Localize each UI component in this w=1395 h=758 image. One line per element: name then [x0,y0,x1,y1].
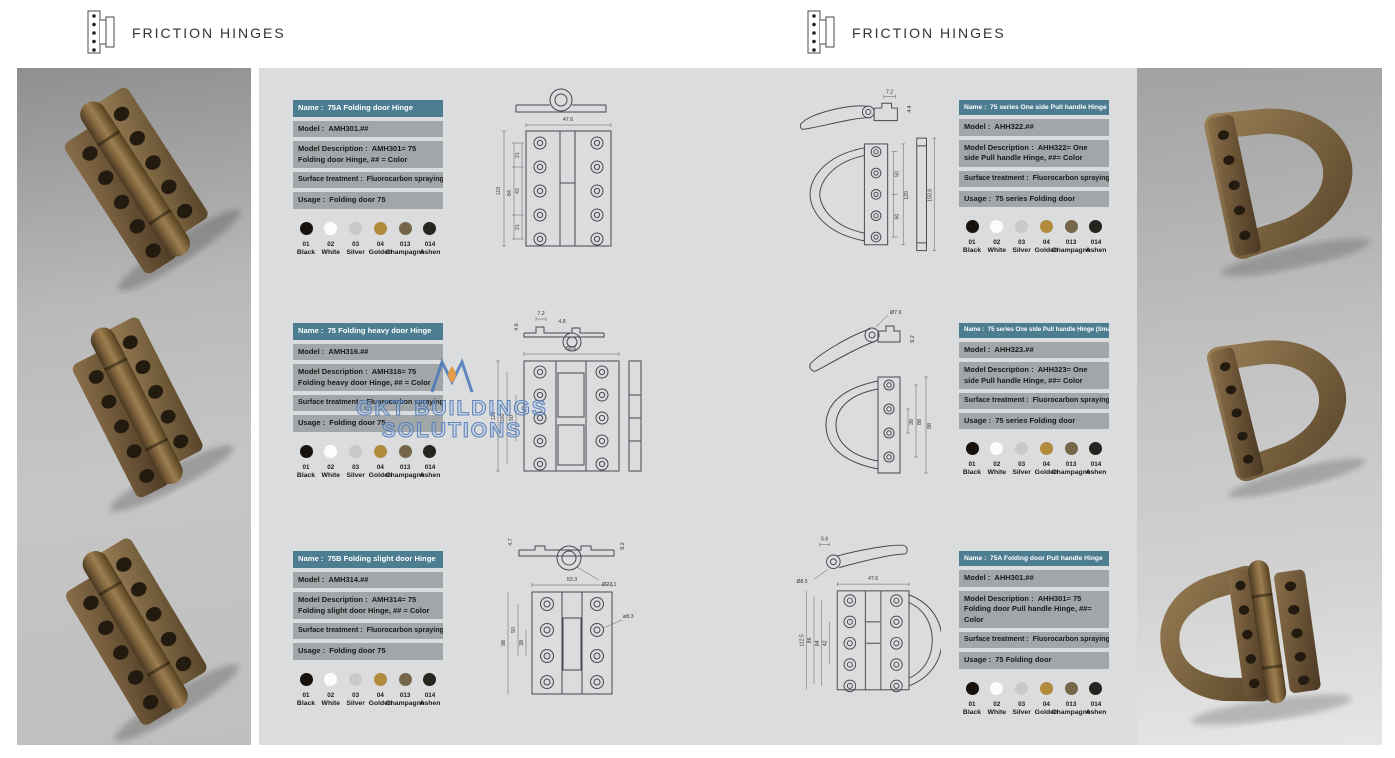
color-swatch-silver: 03Silver [344,222,368,256]
color-code: 013 [1066,239,1077,246]
color-swatch-row: 01Black02White03Silver04Golden013Champag… [293,673,443,707]
color-swatch-silver: 03Silver [344,673,368,707]
dim-label: ø8.3 [623,614,634,620]
color-name: Black [297,249,315,256]
color-code: 01 [968,461,975,468]
photo-folding-slight-door-hinge [17,519,251,745]
color-swatch-black: 01Black [960,682,984,716]
color-swatch-ashen: 014Ashen [418,222,442,256]
color-code: 014 [425,692,436,699]
color-dot [966,442,979,455]
color-dot [300,445,313,458]
color-swatch-white: 02White [319,445,343,479]
color-swatch-silver: 03Silver [344,445,368,479]
dim-label: 4.8 [558,319,565,325]
color-name: Black [297,472,315,479]
color-swatch-black: 01Black [960,442,984,476]
color-name: White [322,700,341,707]
color-swatch-ashen: 014Ashen [1084,220,1108,254]
color-name: Black [963,247,981,254]
color-swatch-black: 01Black [960,220,984,254]
color-code: 04 [1043,239,1050,246]
spec-usage-row: Usage : Folding door 75 [293,643,443,660]
dim-label: 120 [491,412,497,421]
color-code: 04 [377,692,384,699]
drawing-ahh301: 5.6 Ø8.5 47.6 112.5 86 84 42 [781,530,941,708]
catalog-page: FRICTION HINGES FRICTION HINGES [0,0,1395,758]
color-dot [423,222,436,235]
dim-label: 50 [509,415,515,421]
color-code: 02 [327,241,334,248]
dim-label: 84 [815,640,821,646]
dim-label: 4.6 [514,323,520,330]
spec-name-row: Name : 75A Folding door Hinge [293,100,443,117]
spec-description-row: Model Description : AHH322= One side Pul… [959,140,1109,167]
dim-label: 38 [909,419,915,425]
spec-card-ahh322: Name : 75 series One side Pull handle Hi… [959,100,1109,254]
spec-usage-row: Usage : 75 Folding door [959,652,1109,669]
color-dot [1040,220,1053,233]
dim-label: 47.6 [563,117,573,123]
color-swatch-white: 02White [319,222,343,256]
dim-label: 88 [917,419,923,425]
dim-label: 86 [807,637,813,643]
photo-folding-heavy-door-hinge [17,294,251,520]
color-dot [324,445,337,458]
spec-card-ahh301: Name : 75A Folding door Pull handle Hing… [959,551,1109,716]
color-code: 013 [400,692,411,699]
photo-pull-handle-hinge [1137,68,1382,294]
color-dot [423,445,436,458]
color-code: 014 [1091,239,1102,246]
hinge-logo-icon [86,9,116,57]
color-code: 013 [400,464,411,471]
drawing-amh316: 7.2 4.8 4.6 83.6 120 100 50 [474,305,649,483]
color-swatch-silver: 03Silver [1010,220,1034,254]
color-code: 01 [302,464,309,471]
color-name: Silver [1012,247,1031,254]
color-name: Ashen [420,700,441,707]
dim-label: 50 [894,214,900,220]
color-code: 014 [1091,461,1102,468]
color-dot [1015,682,1028,695]
color-code: 03 [352,241,359,248]
spec-model-row: Model : AMH316.## [293,344,443,361]
color-code: 01 [968,701,975,708]
color-swatch-white: 02White [985,220,1009,254]
color-dot [399,673,412,686]
color-code: 03 [1018,239,1025,246]
color-swatch-row: 01Black02White03Silver04Golden013Champag… [959,682,1109,716]
color-dot [1040,682,1053,695]
color-dot [990,220,1003,233]
color-swatch-ashen: 014Ashen [418,673,442,707]
color-dot [349,673,362,686]
color-code: 03 [352,464,359,471]
spec-card-amh301: Name : 75A Folding door Hinge Model : AM… [293,100,443,256]
dim-label: 47.6 [868,576,878,582]
color-swatch-white: 02White [319,673,343,707]
dim-label: 112.5 [799,634,805,647]
drawing-amh314: 4.7 9.2 Ø27.1 53.3 98 50 38 ø8.3 [474,530,649,708]
spec-name-row: Name : 75 Folding heavy door Hinge [293,323,443,340]
dim-label: 84 [507,190,513,196]
color-dot [966,220,979,233]
color-swatch-champagne: 013Champagne [393,673,417,707]
color-name: White [988,469,1007,476]
color-code: 02 [327,464,334,471]
color-name: White [322,472,341,479]
color-swatch-champagne: 013Champagne [1059,442,1083,476]
dim-label: 7.2 [886,90,893,96]
color-name: Black [963,469,981,476]
color-dot [1065,220,1078,233]
dim-label: 38 [519,640,525,646]
color-code: 01 [968,239,975,246]
dim-label: 42 [823,640,829,646]
brand-title: FRICTION HINGES [132,25,286,41]
color-swatch-champagne: 013Champagne [1059,220,1083,254]
spec-surface-row: Surface treatment : Fluorocarbon sprayin… [293,172,443,188]
spec-usage-row: Usage : 75 series Folding door [959,191,1109,208]
dim-label: 42 [515,188,521,194]
color-dot [1089,442,1102,455]
color-dot [1089,220,1102,233]
color-swatch-row: 01Black02White03Silver04Golden013Champag… [293,222,443,256]
color-swatch-row: 01Black02White03Silver04Golden013Champag… [293,445,443,479]
color-dot [966,682,979,695]
brand-header-left: FRICTION HINGES [86,8,286,58]
dim-label: 50 [894,171,900,177]
color-name: Ashen [1086,247,1107,254]
brand-title: FRICTION HINGES [852,25,1006,41]
spec-model-row: Model : AMH301.## [293,121,443,138]
dim-label: 83.6 [566,346,576,352]
dim-label: 4.7 [508,538,514,545]
spec-name-row: Name : 75A Folding door Pull handle Hing… [959,551,1109,566]
color-code: 013 [1066,461,1077,468]
spec-surface-row: Surface treatment : Fluorocarbon sprayin… [959,393,1109,409]
color-code: 02 [327,692,334,699]
color-code: 03 [1018,461,1025,468]
dim-label: 120 [904,191,910,200]
color-swatch-black: 01Black [294,222,318,256]
color-dot [1065,682,1078,695]
drawing-ahh323: Ø7.9 9.2 38 88 98 [781,305,941,483]
color-name: Silver [346,472,365,479]
color-dot [374,445,387,458]
spec-model-row: Model : AMH314.## [293,572,443,589]
color-swatch-silver: 03Silver [1010,682,1034,716]
color-code: 04 [377,464,384,471]
color-name: Silver [346,700,365,707]
color-swatch-white: 02White [985,682,1009,716]
color-code: 01 [302,241,309,248]
color-name: Ashen [1086,469,1107,476]
color-name: White [322,249,341,256]
dim-label: 98 [501,640,507,646]
color-name: White [988,709,1007,716]
color-swatch-white: 02White [985,442,1009,476]
color-code: 04 [1043,461,1050,468]
color-dot [324,673,337,686]
hinge-logo-icon [806,9,836,57]
spec-description-row: Model Description : AMH316= 75 Folding h… [293,364,443,391]
color-dot [1040,442,1053,455]
color-swatch-ashen: 014Ashen [1084,442,1108,476]
dim-label: 9.2 [910,335,916,342]
color-swatch-champagne: 013Champagne [393,445,417,479]
spec-description-row: Model Description : AHH323= One side Pul… [959,362,1109,389]
color-dot [990,442,1003,455]
spec-card-amh316: Name : 75 Folding heavy door Hinge Model… [293,323,443,479]
spec-model-row: Model : AHH322.## [959,119,1109,136]
color-code: 03 [352,692,359,699]
dim-label: 9.2 [620,542,626,549]
color-swatch-ashen: 014Ashen [418,445,442,479]
dim-label: 98 [927,423,933,429]
spec-surface-row: Surface treatment : Fluorocarbon sprayin… [293,395,443,411]
color-swatch-champagne: 013Champagne [393,222,417,256]
spec-usage-row: Usage : 75 series Folding door [959,413,1109,430]
spec-description-row: Model Description : AHH301= 75 Folding d… [959,591,1109,629]
product-photo-column-left [17,68,251,745]
color-dot [399,445,412,458]
dim-label: 100 [500,414,506,423]
dim-label: 4.4 [907,105,913,112]
color-swatch-black: 01Black [294,445,318,479]
color-dot [349,222,362,235]
color-code: 04 [1043,701,1050,708]
color-dot [1015,442,1028,455]
color-dot [1089,682,1102,695]
dim-label: 110 [496,187,502,195]
color-name: Ashen [420,472,441,479]
color-name: Silver [1012,469,1031,476]
color-dot [349,445,362,458]
color-code: 02 [993,239,1000,246]
spec-card-amh314: Name : 75B Folding slight door Hinge Mod… [293,551,443,707]
color-name: Silver [1012,709,1031,716]
spec-model-row: Model : AHH301.## [959,570,1109,587]
spec-surface-row: Surface treatment : Fluorocarbon sprayin… [959,171,1109,187]
dim-label: Ø7.9 [890,310,902,316]
color-name: White [988,247,1007,254]
spec-name-row: Name : 75 series One side Pull handle Hi… [959,100,1109,115]
dim-label: Ø8.5 [797,579,808,585]
spec-name-row: Name : 75B Folding slight door Hinge [293,551,443,568]
color-name: Ashen [1086,709,1107,716]
dim-label: Ø27.1 [602,582,616,588]
color-swatch-champagne: 013Champagne [1059,682,1083,716]
spec-name-row: Name : 75 series One side Pull handle Hi… [959,323,1109,338]
color-dot [1065,442,1078,455]
color-dot [374,222,387,235]
color-dot [300,222,313,235]
color-swatch-row: 01Black02White03Silver04Golden013Champag… [959,220,1109,254]
color-swatch-black: 01Black [294,673,318,707]
dim-label: 50 [511,627,517,633]
product-photo-column-right [1137,68,1382,745]
color-dot [374,673,387,686]
spec-surface-row: Surface treatment : Fluorocarbon sprayin… [959,632,1109,648]
dim-label: 21 [515,224,521,230]
color-dot [399,222,412,235]
color-code: 013 [400,241,411,248]
spec-card-ahh323: Name : 75 series One side Pull handle Hi… [959,323,1109,476]
color-dot [300,673,313,686]
color-name: Ashen [420,249,441,256]
color-dot [990,682,1003,695]
drawing-ahh322: 7.2 4.4 50 50 120 150.8 [781,85,941,263]
dim-label: 7.2 [537,311,544,317]
color-swatch-ashen: 014Ashen [1084,682,1108,716]
color-swatch-silver: 03Silver [1010,442,1034,476]
color-code: 014 [1091,701,1102,708]
color-name: Black [297,700,315,707]
color-code: 01 [302,692,309,699]
brand-header-right: FRICTION HINGES [806,8,1006,58]
color-swatch-row: 01Black02White03Silver04Golden013Champag… [959,442,1109,476]
spec-description-row: Model Description : AMH301= 75 Folding d… [293,141,443,168]
dim-label: 5.6 [821,536,828,542]
color-name: Black [963,709,981,716]
spec-usage-row: Usage : Folding door 75 [293,415,443,432]
color-code: 02 [993,461,1000,468]
color-dot [324,222,337,235]
spec-surface-row: Surface treatment : Fluorocarbon sprayin… [293,623,443,639]
color-code: 04 [377,241,384,248]
spec-panel: GKT BUILDINGS SOLUTIONS Name : 75A Foldi… [259,68,1137,745]
drawing-amh301: 47.6 110 84 21 42 21 [474,85,649,263]
dim-label: 150.8 [927,189,933,202]
color-code: 014 [425,241,436,248]
color-code: 02 [993,701,1000,708]
color-code: 03 [1018,701,1025,708]
dim-label: 21 [515,152,521,158]
color-code: 013 [1066,701,1077,708]
color-code: 014 [425,464,436,471]
dim-label: 53.3 [567,577,577,583]
color-name: Silver [346,249,365,256]
spec-model-row: Model : AHH323.## [959,342,1109,359]
spec-description-row: Model Description : AMH314= 75 Folding s… [293,592,443,619]
color-dot [423,673,436,686]
photo-folding-door-pull-handle-hinge [1137,519,1382,745]
color-dot [1015,220,1028,233]
photo-pull-handle-hinge-small [1137,294,1382,520]
spec-usage-row: Usage : Folding door 75 [293,192,443,209]
photo-folding-door-hinge [17,68,251,294]
